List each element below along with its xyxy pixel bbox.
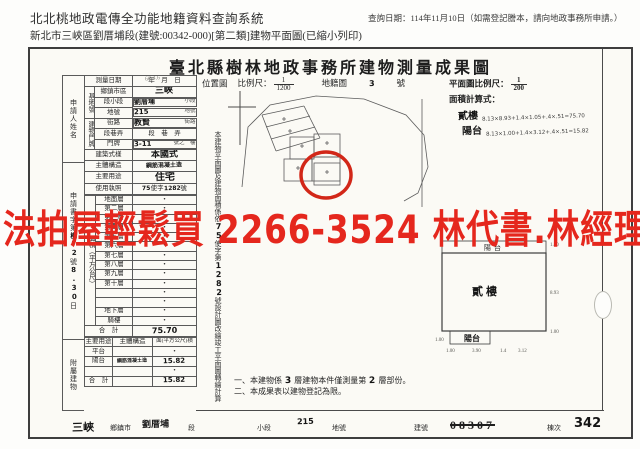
structure-label: 主體構造 — [85, 161, 133, 172]
floor-label: 第八層 — [96, 261, 133, 270]
map-scale-num: 1 — [282, 77, 286, 84]
annex-area-hand: 15.82 — [163, 358, 185, 366]
note1-b: 層建物本件僅測量第 — [294, 376, 366, 385]
location-map-label: 位置圖 — [202, 78, 228, 88]
structure-value: 鋼筋混凝土造 — [133, 161, 197, 172]
parcel-hand: 215 — [134, 108, 149, 115]
annex-table: 主要用途 主體構造 面(平方公尺)積 平台 • 陽台 鋼筋混凝土造 15.82 — [84, 337, 197, 387]
door-group-label: 建物門牌 — [85, 118, 95, 150]
building-identity-table: 測量日期 66.4.6年 月 日 基地號 鄉鎮市區 三峽 段小段 劉厝埔小段 地… — [84, 75, 197, 195]
parcel-value: 215地號 — [133, 108, 197, 117]
note-line-1: 一、本建物係3層建物本件僅測量第2層部份。 — [234, 375, 411, 387]
annex-area: • — [153, 347, 197, 357]
parcel-boundaries — [242, 96, 428, 207]
footer-unit-label: 棟次 — [547, 423, 561, 433]
plan-scale-num: 1 — [517, 77, 521, 84]
plan-scale-den: 200 — [511, 84, 528, 92]
table-row: 地下層• — [85, 307, 197, 316]
cadastral-ref-hand: 3 — [369, 79, 375, 88]
lane-label: 段巷弄 — [95, 129, 133, 140]
sheet-notes: 一、本建物係3層建物本件僅測量第2層部份。 二、本成果表以建物登記為限。 — [234, 375, 411, 398]
table-row: 主體構造 鋼筋混凝土造 — [85, 161, 197, 172]
main-floor-label: 貳樓 — [472, 284, 500, 298]
footer-parcel-hand: 215 — [297, 417, 314, 426]
annex-use — [85, 367, 113, 377]
table-row: 基地號 鄉鎮市區 三峽 — [85, 87, 197, 98]
calc-formula: 8.13×1.00+1.4×3.12+.4×.51=15.82 — [486, 128, 589, 138]
sheet-bottom-rule — [196, 410, 604, 411]
use-label: 主要用途 — [85, 172, 133, 184]
style-hand: 本國式 — [151, 150, 178, 160]
door-value: 3-11號之 樓 — [133, 140, 197, 149]
table-row: 合 計75.70 — [85, 326, 197, 337]
application-hand2: 8.30 — [69, 266, 78, 302]
license-label: 使用執照 — [85, 184, 133, 195]
plan-scale-fraction: 1200 — [511, 77, 528, 92]
table-row: 門牌 3-11號之 樓 — [85, 139, 197, 150]
annex-structure-hand: 鋼筋混凝土造 — [117, 359, 147, 365]
parcel-suffix: 地號 — [184, 109, 195, 115]
annex-use: 平台 — [85, 347, 113, 357]
note1-hand2: 2 — [369, 375, 376, 387]
note1-hand1: 3 — [285, 375, 292, 387]
cadastral-ref-suffix: 號 — [397, 78, 406, 88]
floor-label — [96, 288, 133, 297]
floor-value: • — [133, 279, 197, 288]
annex-group-label: 附屬建物 — [62, 339, 84, 411]
cadastral-ref-label: 地籍圖 — [322, 78, 348, 88]
annex-total-hand: 15.82 — [163, 377, 185, 385]
floor-label: 第十層 — [96, 279, 133, 288]
section-label: 段小段 — [95, 97, 133, 108]
table-row: 主要用途 住宅 — [85, 172, 197, 184]
table-row: • — [85, 367, 197, 377]
table-row: 建築式樣 本國式 — [85, 150, 197, 161]
table-row: 測量日期 66.4.6年 月 日 — [85, 76, 197, 87]
district-value: 三峽 — [133, 87, 197, 98]
parcel-label: 地號 — [95, 108, 133, 119]
street-label: 街路 — [95, 118, 133, 129]
street-value: 教賢街路 — [133, 118, 197, 128]
dim-b4: 3.12 — [518, 349, 527, 354]
dim-left: 1.00 — [435, 338, 444, 343]
dim-bottom-right: 1.00 — [550, 330, 559, 335]
floor-label — [96, 298, 133, 307]
license-hand2: 1282 — [164, 186, 181, 192]
watermark-advert: 法拍屋輕鬆買 2266-3524 林代書.林經理 — [3, 199, 640, 255]
lane-value: 段 巷 弄 — [133, 129, 197, 140]
floor-total-value: 75.70 — [133, 326, 197, 337]
table-row: 騎樓• — [85, 316, 197, 325]
note-strip-hand2: 1282 — [213, 261, 223, 297]
table-row: 第八層• — [85, 261, 197, 270]
table-row: • — [85, 298, 197, 307]
scanned-document-page: 北北桃地政電傳全功能地籍資料查詢系統 查詢日期：114年11月10日（如需登記謄… — [0, 0, 640, 449]
site-group-label: 基地號 — [85, 87, 95, 119]
applicant-label: 申請人姓名 — [62, 75, 84, 163]
table-row: 第十層• — [85, 279, 197, 288]
table-row: 第九層• — [85, 270, 197, 279]
license-hand1: 75 — [142, 186, 151, 192]
floor-value: • — [133, 316, 197, 325]
annex-structure — [113, 347, 153, 357]
table-row: 地號 215地號 — [85, 108, 197, 119]
floor-label: 第九層 — [96, 270, 133, 279]
highlight-circle — [301, 152, 351, 198]
query-system-title: 北北桃地政電傳全功能地籍資料查詢系統 — [30, 8, 264, 27]
query-subtitle: 新北市三峽區劉厝埔段(建號:00342-000)[第二類]建物平面圖(已縮小列印… — [30, 28, 362, 43]
license-suffix: 號 — [180, 185, 187, 192]
footer-unit-value: 342 — [574, 416, 601, 431]
table-row: 段小段 劉厝埔小段 — [85, 97, 197, 108]
table-row: 段巷弄 段 巷 弄 — [85, 129, 197, 140]
floor-total-hand: 75.70 — [152, 326, 178, 335]
floor-value: • — [133, 288, 197, 297]
style-label: 建築式樣 — [85, 150, 133, 161]
use-value: 住宅 — [133, 172, 197, 184]
application-mid: 號 — [69, 258, 79, 266]
plan-source-note-strip: 本建物平面圖及建物面積係依75使字第1282號設計圖改繪竣工平面圖轉繪計算 — [199, 131, 223, 405]
annex-area: 15.82 — [153, 357, 197, 367]
paper-notch — [594, 291, 612, 319]
door-suffix: 號之 樓 — [173, 141, 195, 147]
footer-town-label: 鄉鎮市 — [110, 423, 131, 433]
map-scale-label: 比例尺： — [238, 78, 272, 88]
floor-value: • — [133, 261, 197, 270]
dim-b3: 1.4 — [500, 349, 507, 354]
dim-b2: 3.90 — [472, 349, 481, 354]
street-hand: 教賢 — [134, 119, 150, 127]
floor-total-label: 合 計 — [85, 326, 133, 337]
annex-structure: 鋼筋混凝土造 — [113, 357, 153, 367]
floor-label: 騎樓 — [96, 316, 133, 325]
footer-subsection-label: 小段 — [257, 423, 271, 433]
style-value: 本國式 — [133, 150, 197, 161]
annex-header-area: 面(平方公尺)積 — [153, 337, 197, 347]
note-strip-c: 號設計圖改繪竣工平面圖轉繪計算 — [214, 297, 222, 402]
district-hand: 三峽 — [155, 87, 173, 96]
note1-a: 一、本建物係 — [234, 376, 282, 385]
dim-b1: 1.00 — [446, 349, 455, 354]
footer-parcel-label: 地號 — [332, 423, 346, 433]
street-suffix: 街路 — [184, 120, 195, 126]
footer-building-label: 建號 — [414, 423, 428, 433]
license-value: 75使字1282號 — [133, 184, 197, 195]
floor-value: • — [133, 307, 197, 316]
survey-date-value: 66.4.6年 月 日 — [133, 76, 197, 87]
floor-value: • — [133, 298, 197, 307]
bottom-balcony-label: 陽台 — [464, 333, 480, 343]
query-date: 查詢日期：114年11月10日（如需登記謄本，請向地政事務所申請。） — [368, 12, 622, 24]
structure-hand: 鋼筋混凝土造 — [146, 162, 182, 169]
area-calc-row: 陽台8.13×1.00+1.4×3.12+.4×.51=15.82 — [462, 121, 589, 139]
annex-total-structure — [113, 376, 153, 386]
license-mid: 使字 — [151, 185, 164, 192]
note1-c: 層部份。 — [379, 376, 411, 385]
table-row: 主要用途 主體構造 面(平方公尺)積 — [85, 337, 197, 347]
sheet-footer: 三峽 鄉鎮市 劉厝埔 段 小段 215 地號 建號 08307 棟次 342 — [30, 415, 631, 439]
footer-section-hand: 劉厝埔 — [142, 417, 169, 431]
section-suffix: 小段 — [184, 99, 195, 105]
application-suffix: 日 — [69, 302, 79, 310]
door-hand: 3-11 — [134, 140, 152, 147]
district-label: 鄉鎮市區 — [95, 87, 133, 98]
table-row: • — [85, 288, 197, 297]
calc-name: 貳樓 — [458, 107, 478, 123]
floor-label: 地下層 — [96, 307, 133, 316]
annex-total-label: 合 計 — [85, 376, 113, 386]
annex-header-structure: 主體構造 — [113, 337, 153, 347]
plan-scale-label: 平面圖比例尺： — [449, 78, 509, 88]
annex-header-use: 主要用途 — [85, 337, 113, 347]
table-row: 合 計 15.82 — [85, 376, 197, 386]
table-row: 陽台 鋼筋混凝土造 15.82 — [85, 357, 197, 367]
annex-use: 陽台 — [85, 357, 113, 367]
footer-section-label: 段 — [188, 423, 195, 433]
floor-value: • — [133, 270, 197, 279]
dim-right: 8.93 — [550, 291, 559, 296]
note-line-2: 二、本成果表以建物登記為限。 — [234, 387, 411, 398]
footer-building-old-number: 08307 — [450, 418, 495, 433]
location-map-sketch — [226, 89, 442, 213]
plan-scale: 平面圖比例尺：1200 — [449, 77, 529, 92]
survey-date-label: 測量日期 — [85, 76, 133, 87]
calc-name: 陽台 — [462, 122, 482, 138]
footer-town-hand: 三峽 — [72, 419, 94, 436]
annex-structure — [113, 367, 153, 377]
use-hand: 住宅 — [154, 172, 174, 183]
annex-total-area: 15.82 — [153, 376, 197, 386]
table-row: 平台 • — [85, 347, 197, 357]
area-calc-label: 面積計算式： — [449, 93, 500, 105]
section-value: 劉厝埔小段 — [133, 98, 197, 107]
annex-area: • — [153, 367, 197, 377]
table-row: 建物門牌 街路 教賢街路 — [85, 118, 197, 129]
door-label: 門牌 — [95, 139, 133, 150]
table-row: 使用執照 75使字1282號 — [85, 184, 197, 195]
section-hand: 劉厝埔 — [134, 98, 155, 106]
